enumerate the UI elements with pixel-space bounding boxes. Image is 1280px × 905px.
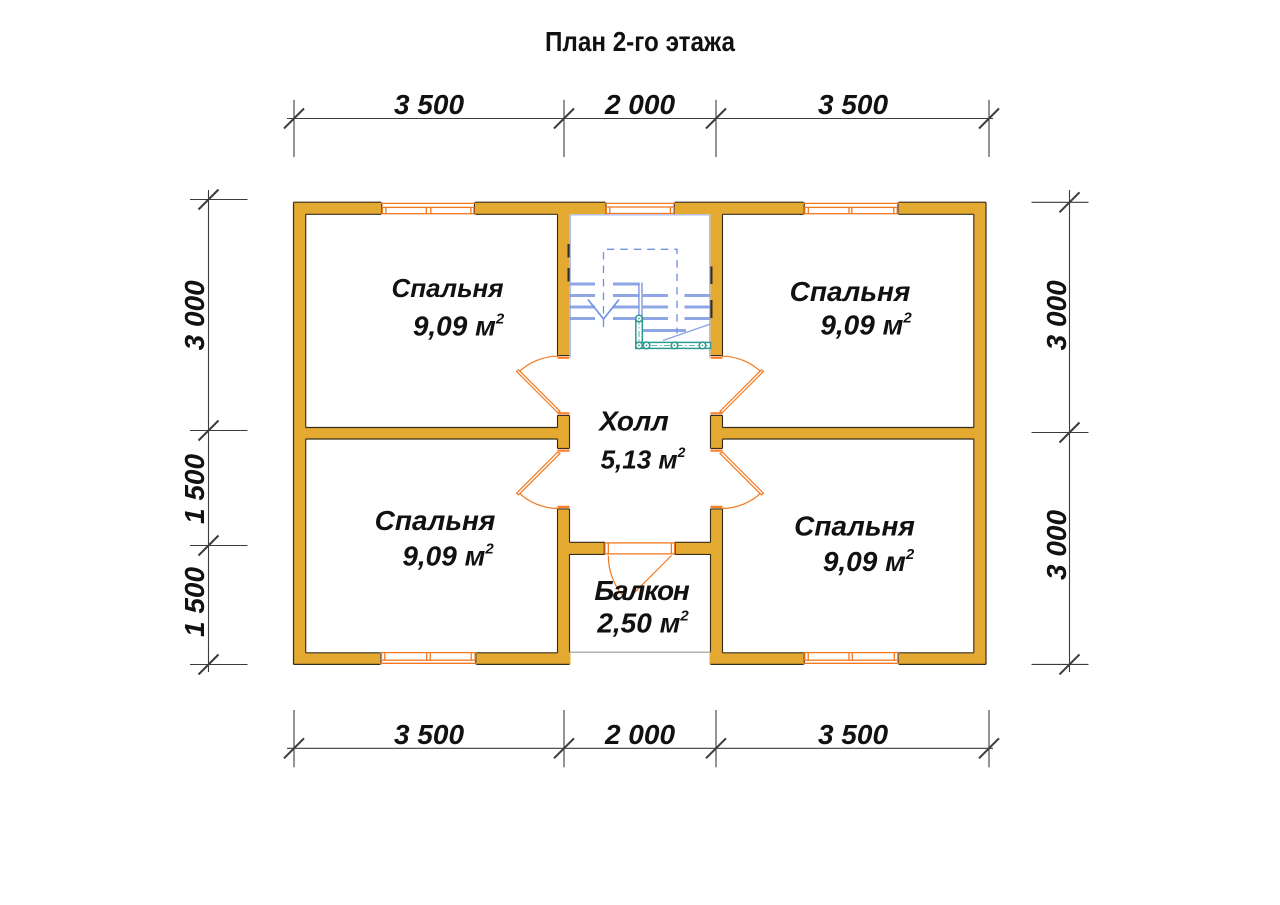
svg-text:3 500: 3 500 (394, 719, 464, 750)
svg-text:9,09 м2: 9,09 м2 (413, 311, 505, 342)
svg-text:3 500: 3 500 (394, 89, 464, 120)
svg-text:2 000: 2 000 (604, 89, 675, 120)
svg-text:Спальня: Спальня (794, 511, 915, 542)
svg-text:1 500: 1 500 (179, 567, 210, 637)
svg-text:Спальня: Спальня (391, 273, 503, 303)
svg-text:3 500: 3 500 (818, 89, 888, 120)
svg-text:Балкон: Балкон (594, 575, 689, 606)
svg-text:3 000: 3 000 (179, 280, 210, 350)
svg-text:1 500: 1 500 (179, 454, 210, 524)
svg-text:Холл: Холл (597, 406, 669, 437)
svg-text:2,50 м2: 2,50 м2 (596, 608, 689, 639)
svg-text:План 2-го этажа: План 2-го этажа (545, 26, 735, 57)
svg-text:Спальня: Спальня (790, 276, 911, 307)
svg-text:Спальня: Спальня (375, 505, 496, 536)
svg-text:2 000: 2 000 (604, 719, 675, 750)
svg-text:9,09 м2: 9,09 м2 (820, 310, 912, 341)
svg-text:3 500: 3 500 (818, 719, 888, 750)
svg-text:9,09 м2: 9,09 м2 (823, 546, 915, 577)
svg-text:5,13 м2: 5,13 м2 (601, 444, 686, 474)
svg-text:3 000: 3 000 (1041, 510, 1072, 580)
svg-text:3 000: 3 000 (1041, 280, 1072, 350)
svg-text:9,09 м2: 9,09 м2 (402, 541, 494, 572)
